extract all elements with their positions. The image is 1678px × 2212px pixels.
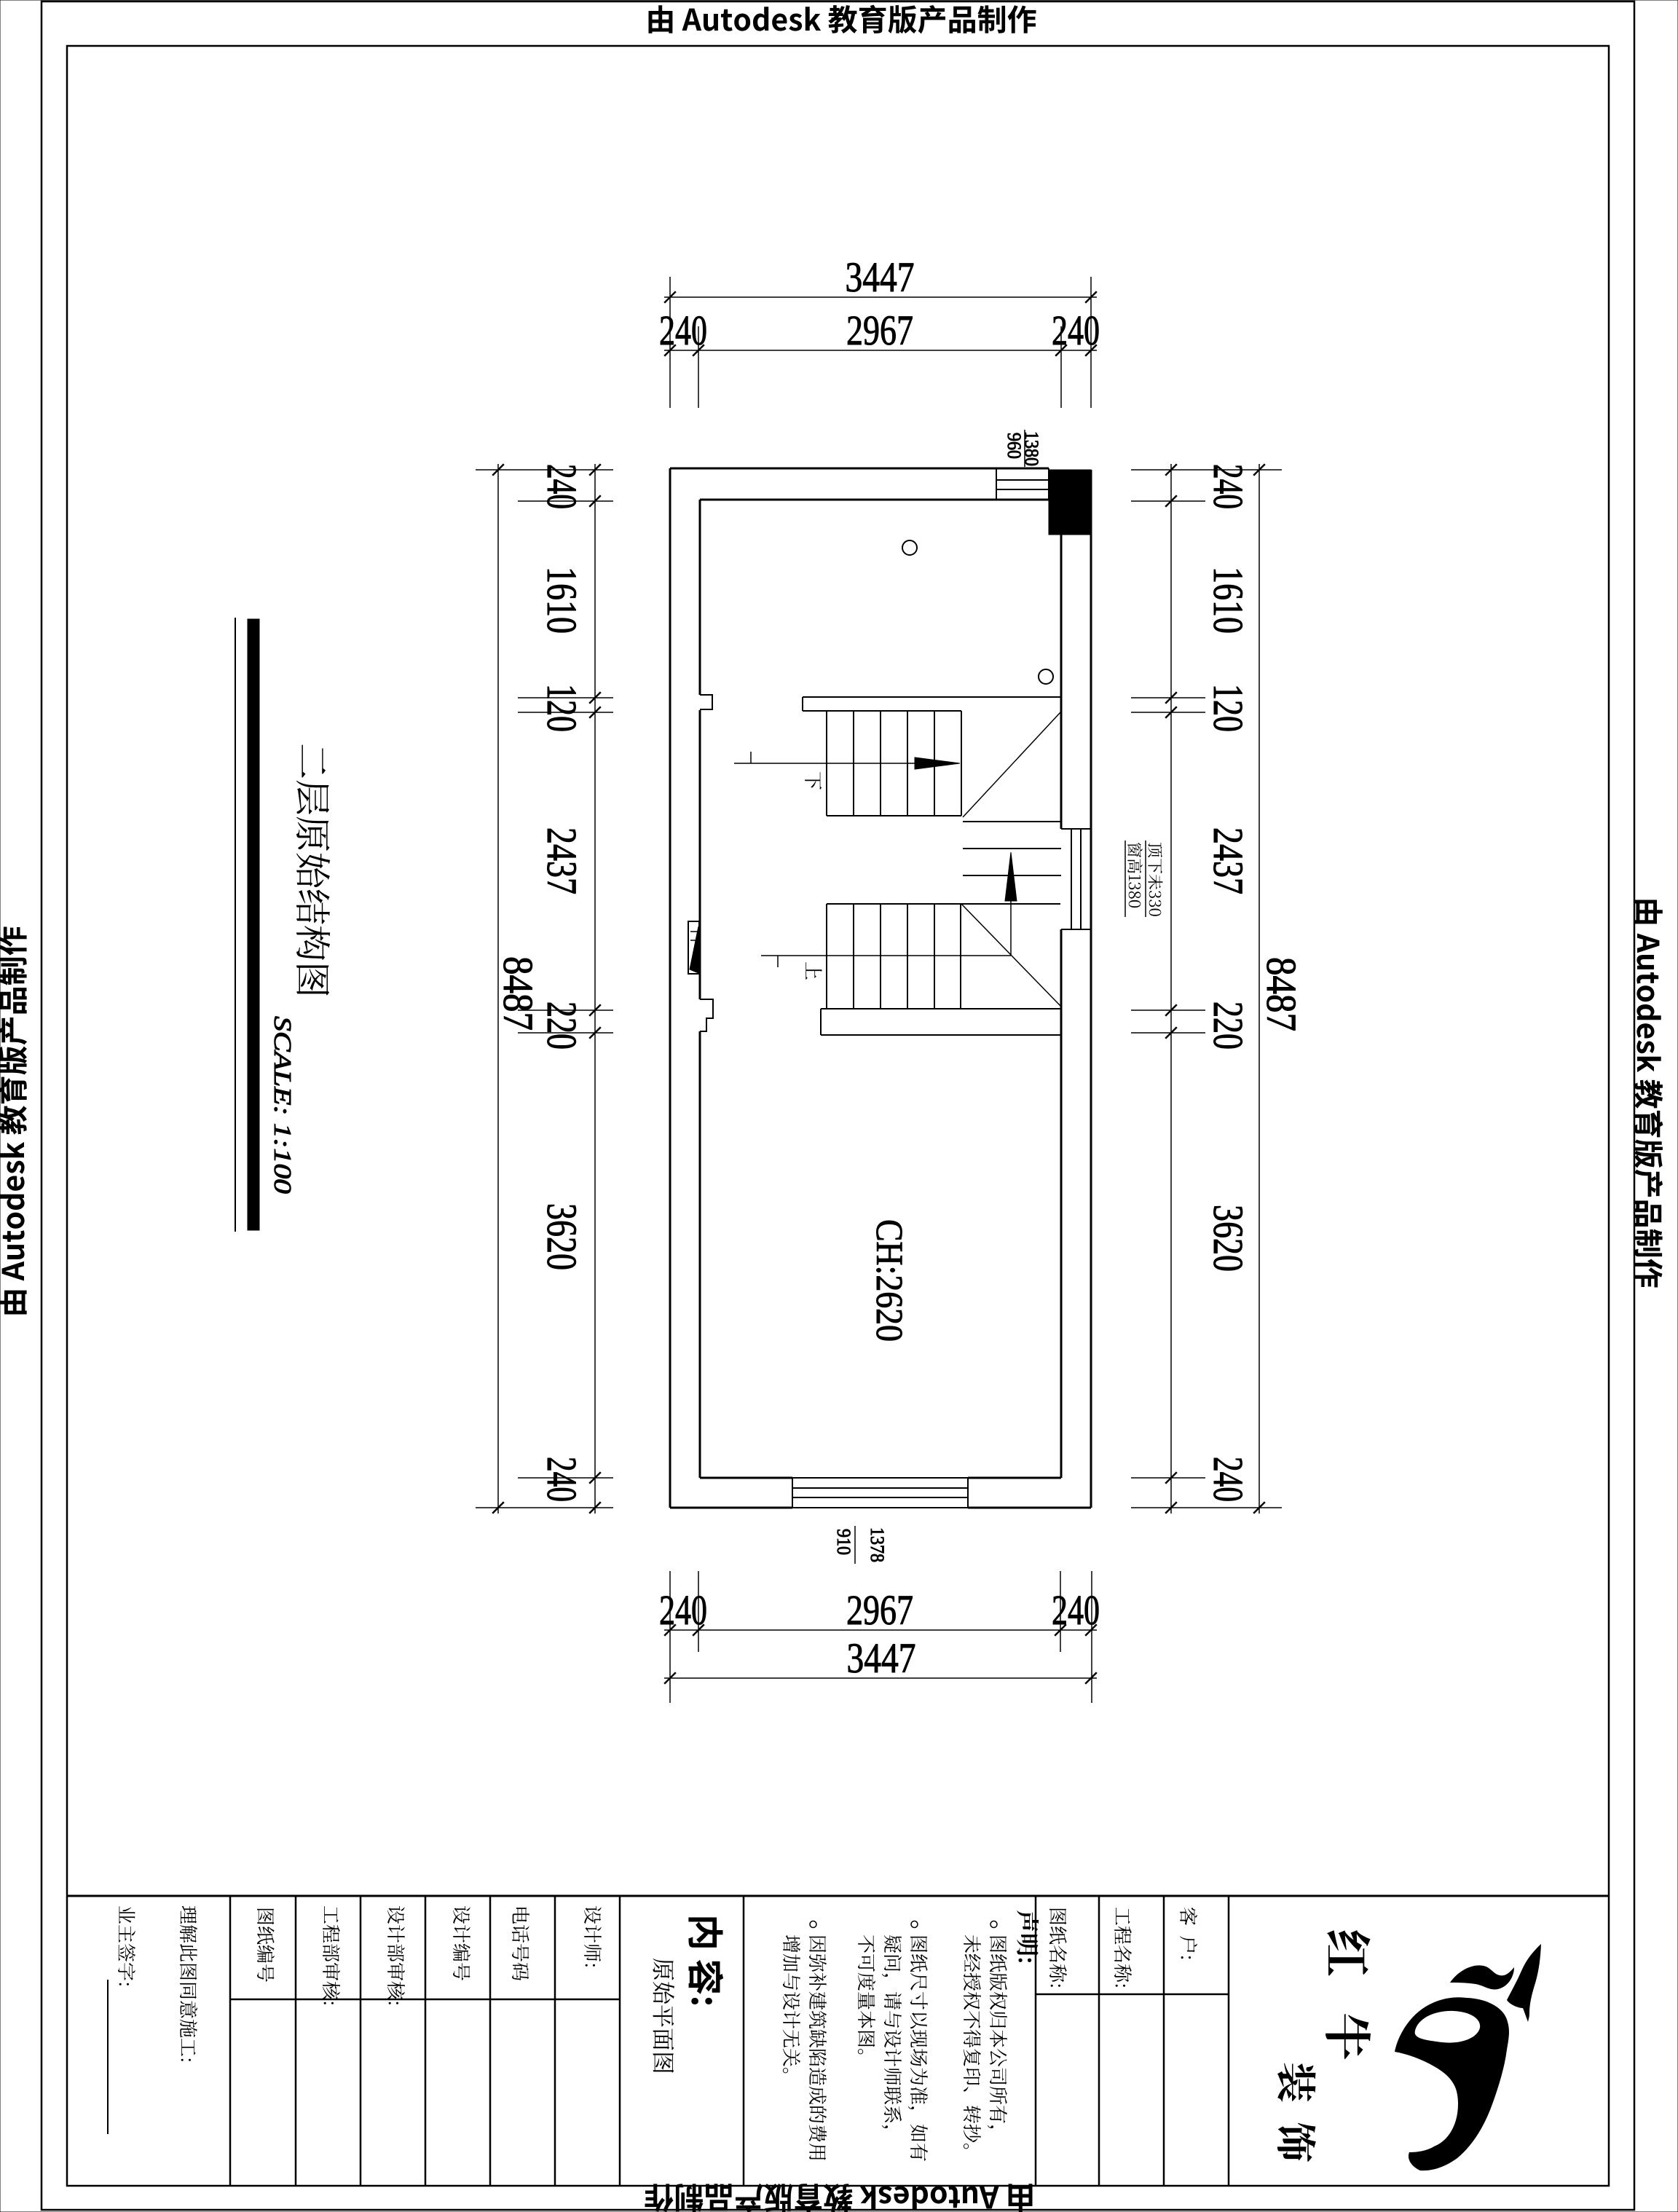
svg-text:240: 240 [1205,1457,1252,1502]
svg-text:1610: 1610 [538,567,586,634]
svg-text:240: 240 [659,1586,707,1634]
svg-text:240: 240 [1052,1586,1100,1634]
svg-text:2967: 2967 [846,307,913,354]
svg-text:240: 240 [1205,464,1252,509]
svg-text:910: 910 [833,1529,854,1555]
svg-text:220: 220 [538,1001,586,1050]
svg-text:2967: 2967 [846,1586,913,1634]
svg-text:240: 240 [538,1457,586,1502]
svg-text:1378: 1378 [867,1527,888,1562]
svg-text:3620: 3620 [538,1203,586,1270]
svg-text:120: 120 [1205,684,1252,732]
svg-text:3447: 3447 [846,253,915,301]
svg-text:3620: 3620 [1205,1205,1252,1272]
svg-text:960: 960 [1004,433,1025,459]
svg-text:3447: 3447 [847,1634,916,1682]
svg-text:240: 240 [659,307,707,354]
svg-text:1610: 1610 [1205,567,1252,634]
svg-text:8487: 8487 [495,956,542,1031]
svg-text:CH:2620: CH:2620 [868,1219,910,1342]
svg-text:240: 240 [1052,307,1100,354]
svg-text:220: 220 [1205,1001,1252,1050]
svg-text:SCALE: 1:100: SCALE: 1:100 [269,1016,296,1194]
svg-text:8487: 8487 [1258,957,1305,1031]
svg-text:2437: 2437 [1205,827,1252,894]
svg-text:2437: 2437 [538,827,586,894]
svg-text:240: 240 [538,464,586,509]
svg-text:120: 120 [538,684,586,732]
